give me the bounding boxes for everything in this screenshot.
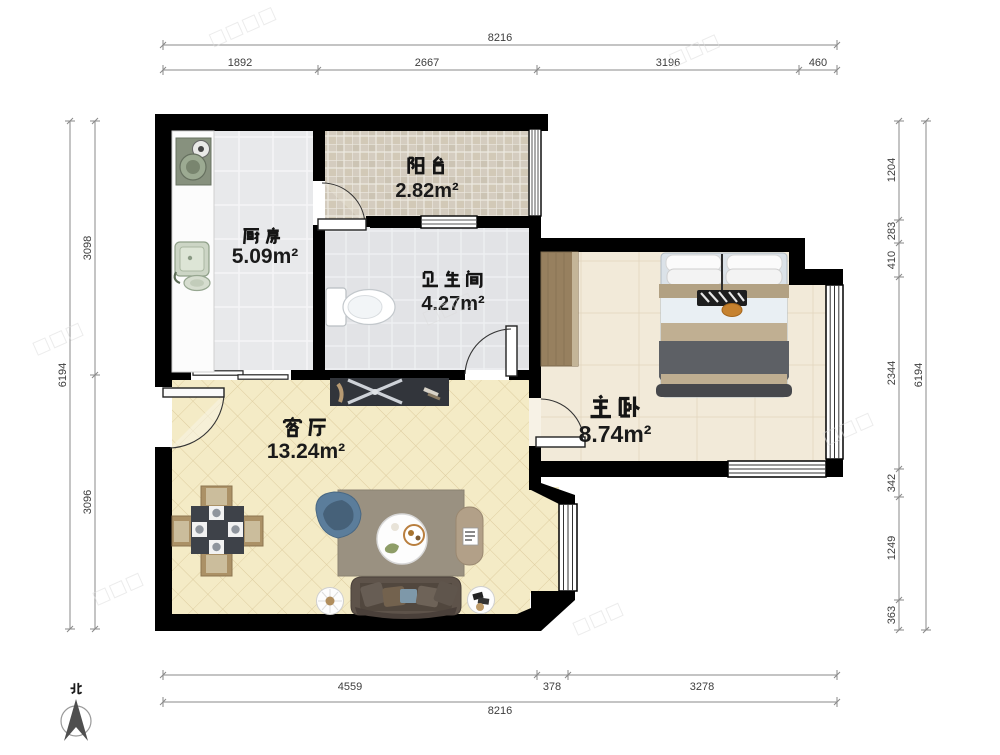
svg-text:8.74m²: 8.74m² bbox=[579, 421, 652, 447]
svg-text:3196: 3196 bbox=[656, 57, 680, 69]
svg-text:13.24m²: 13.24m² bbox=[267, 440, 345, 463]
svg-text:283: 283 bbox=[886, 222, 898, 240]
svg-text:1204: 1204 bbox=[886, 158, 898, 182]
svg-text:363: 363 bbox=[886, 606, 898, 624]
svg-text:3098: 3098 bbox=[82, 236, 94, 260]
svg-text:4559: 4559 bbox=[338, 681, 362, 693]
svg-text:378: 378 bbox=[543, 681, 561, 693]
svg-text:3096: 3096 bbox=[82, 490, 94, 514]
svg-text:8216: 8216 bbox=[488, 705, 512, 717]
svg-text:2344: 2344 bbox=[886, 361, 898, 385]
svg-text:460: 460 bbox=[809, 57, 827, 69]
svg-text:8216: 8216 bbox=[488, 32, 512, 44]
svg-text:5.09m²: 5.09m² bbox=[232, 245, 299, 268]
svg-text:2.82m²: 2.82m² bbox=[395, 180, 459, 202]
svg-text:3278: 3278 bbox=[690, 681, 714, 693]
svg-text:6194: 6194 bbox=[57, 363, 69, 387]
svg-text:1249: 1249 bbox=[886, 536, 898, 560]
svg-text:2667: 2667 bbox=[415, 57, 439, 69]
svg-text:1892: 1892 bbox=[228, 57, 252, 69]
svg-text:342: 342 bbox=[886, 474, 898, 492]
svg-text:6194: 6194 bbox=[913, 363, 925, 387]
svg-text:410: 410 bbox=[886, 251, 898, 269]
